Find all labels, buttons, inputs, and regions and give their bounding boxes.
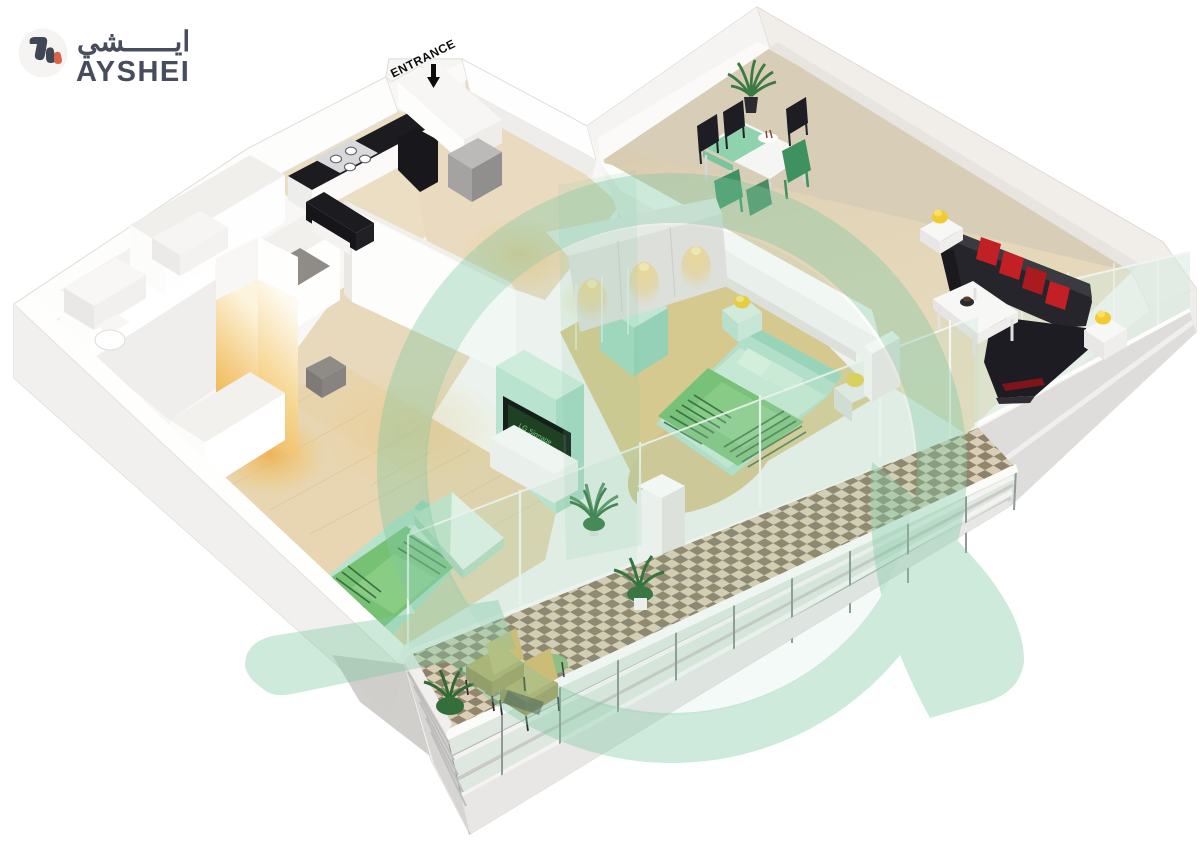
svg-text:ايــــــشي: ايــــــشي xyxy=(77,26,190,59)
svg-text:AYSHEI: AYSHEI xyxy=(76,56,190,88)
